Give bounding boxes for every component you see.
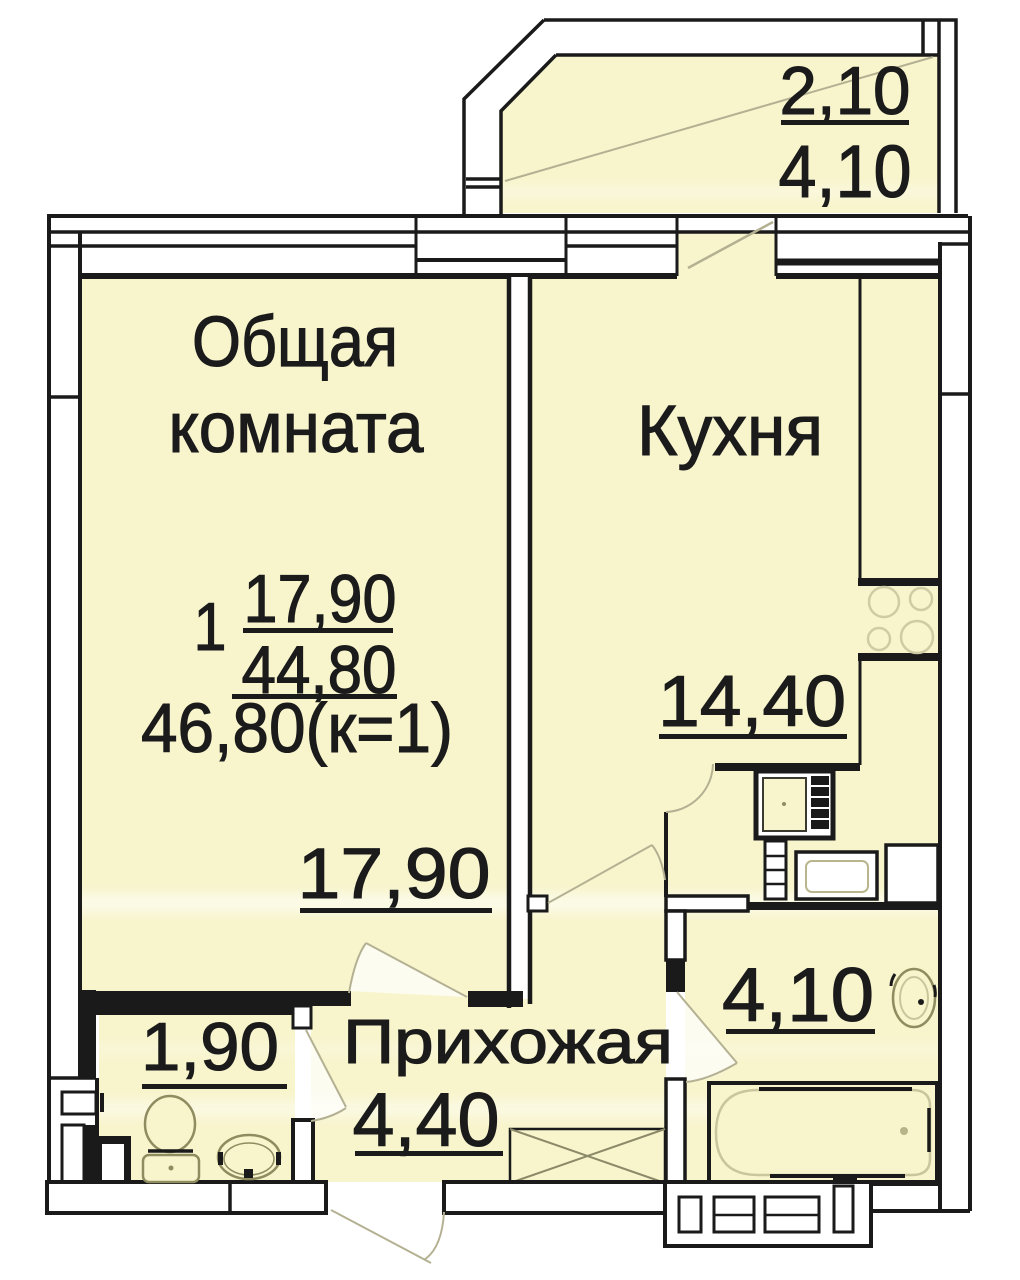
svg-text:1,90: 1,90 bbox=[141, 1009, 279, 1085]
svg-text:комната: комната bbox=[169, 389, 424, 468]
svg-text:Прихожая: Прихожая bbox=[343, 1008, 673, 1077]
svg-text:1: 1 bbox=[194, 589, 227, 665]
svg-text:17,90: 17,90 bbox=[244, 561, 397, 637]
svg-text:4,10: 4,10 bbox=[779, 130, 912, 213]
svg-text:Общая: Общая bbox=[192, 303, 398, 382]
svg-text:46,80(к=1): 46,80(к=1) bbox=[141, 689, 453, 767]
svg-text:4,40: 4,40 bbox=[353, 1078, 500, 1163]
svg-text:2,10: 2,10 bbox=[780, 53, 911, 129]
svg-text:4,10: 4,10 bbox=[722, 953, 874, 1038]
svg-text:17,90: 17,90 bbox=[298, 835, 491, 914]
svg-text:14,40: 14,40 bbox=[658, 662, 846, 742]
svg-text:Кухня: Кухня bbox=[637, 392, 823, 471]
